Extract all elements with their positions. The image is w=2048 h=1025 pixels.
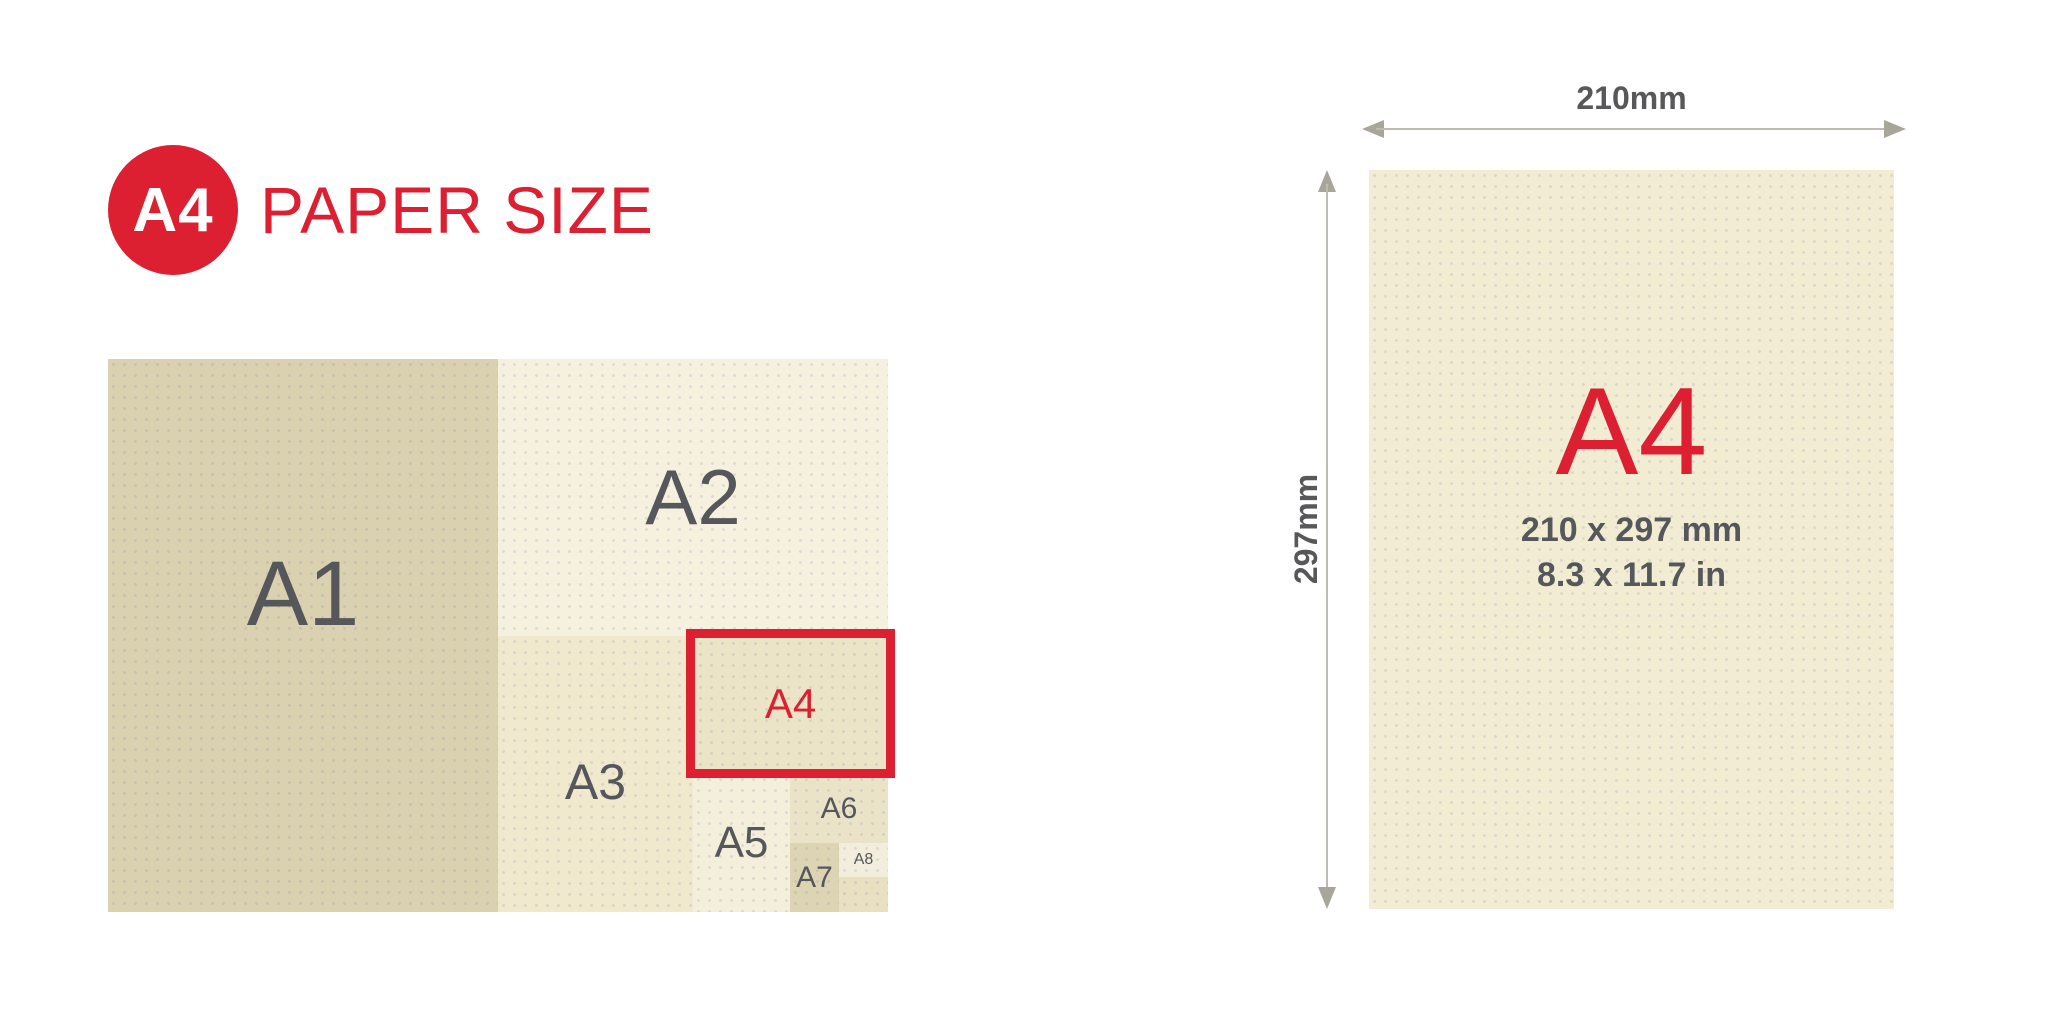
arrowhead-right-icon	[1884, 120, 1906, 138]
paper-cell-remainder	[839, 877, 888, 912]
a4-badge: A4	[108, 145, 238, 275]
paper-cell-a1-label: A1	[247, 542, 360, 647]
page-title: PAPER SIZE	[260, 145, 654, 275]
a4-sheet-dimensions: 210 x 297 mm 8.3 x 11.7 in	[1369, 508, 1894, 598]
width-arrow-line	[1376, 128, 1892, 130]
paper-cell-a7: A7	[790, 843, 839, 912]
paper-cell-a5: A5	[693, 774, 790, 912]
paper-cell-a6: A6	[790, 774, 888, 843]
a4-paper-size-infographic: { "header": { "badge": "A4", "title": "P…	[0, 0, 2048, 1025]
arrowhead-down-icon	[1318, 887, 1336, 909]
paper-cell-a6-label: A6	[821, 792, 858, 826]
paper-cell-a7-label: A7	[796, 861, 833, 895]
a4-sheet-preview: A4 210 x 297 mm 8.3 x 11.7 in	[1369, 170, 1894, 909]
paper-cell-a3-label: A3	[565, 753, 626, 811]
paper-cell-a3: A3	[498, 636, 693, 912]
a4-dimensions-in: 8.3 x 11.7 in	[1369, 553, 1894, 598]
paper-cell-a4-label: A4	[765, 680, 816, 728]
paper-cell-a1: A1	[108, 359, 498, 912]
paper-cell-a8: A8	[839, 843, 888, 877]
height-arrow	[1318, 170, 1336, 909]
paper-cell-a5-label: A5	[715, 818, 769, 868]
width-arrow	[1362, 120, 1906, 138]
a4-sheet-size-label: A4	[1369, 370, 1894, 494]
paper-cell-a8-label: A8	[854, 851, 874, 869]
paper-cell-a2: A2	[498, 359, 888, 636]
width-dimension-label: 210mm	[1369, 80, 1894, 117]
height-arrow-line	[1326, 184, 1328, 895]
a4-badge-label: A4	[132, 175, 213, 246]
a4-dimensions-mm: 210 x 297 mm	[1369, 508, 1894, 553]
paper-size-nesting-diagram: A1 A2 A3 A4 A5 A6 A7 A8	[108, 359, 888, 912]
paper-cell-a4-highlighted: A4	[686, 629, 895, 778]
paper-cell-a2-label: A2	[645, 452, 740, 543]
